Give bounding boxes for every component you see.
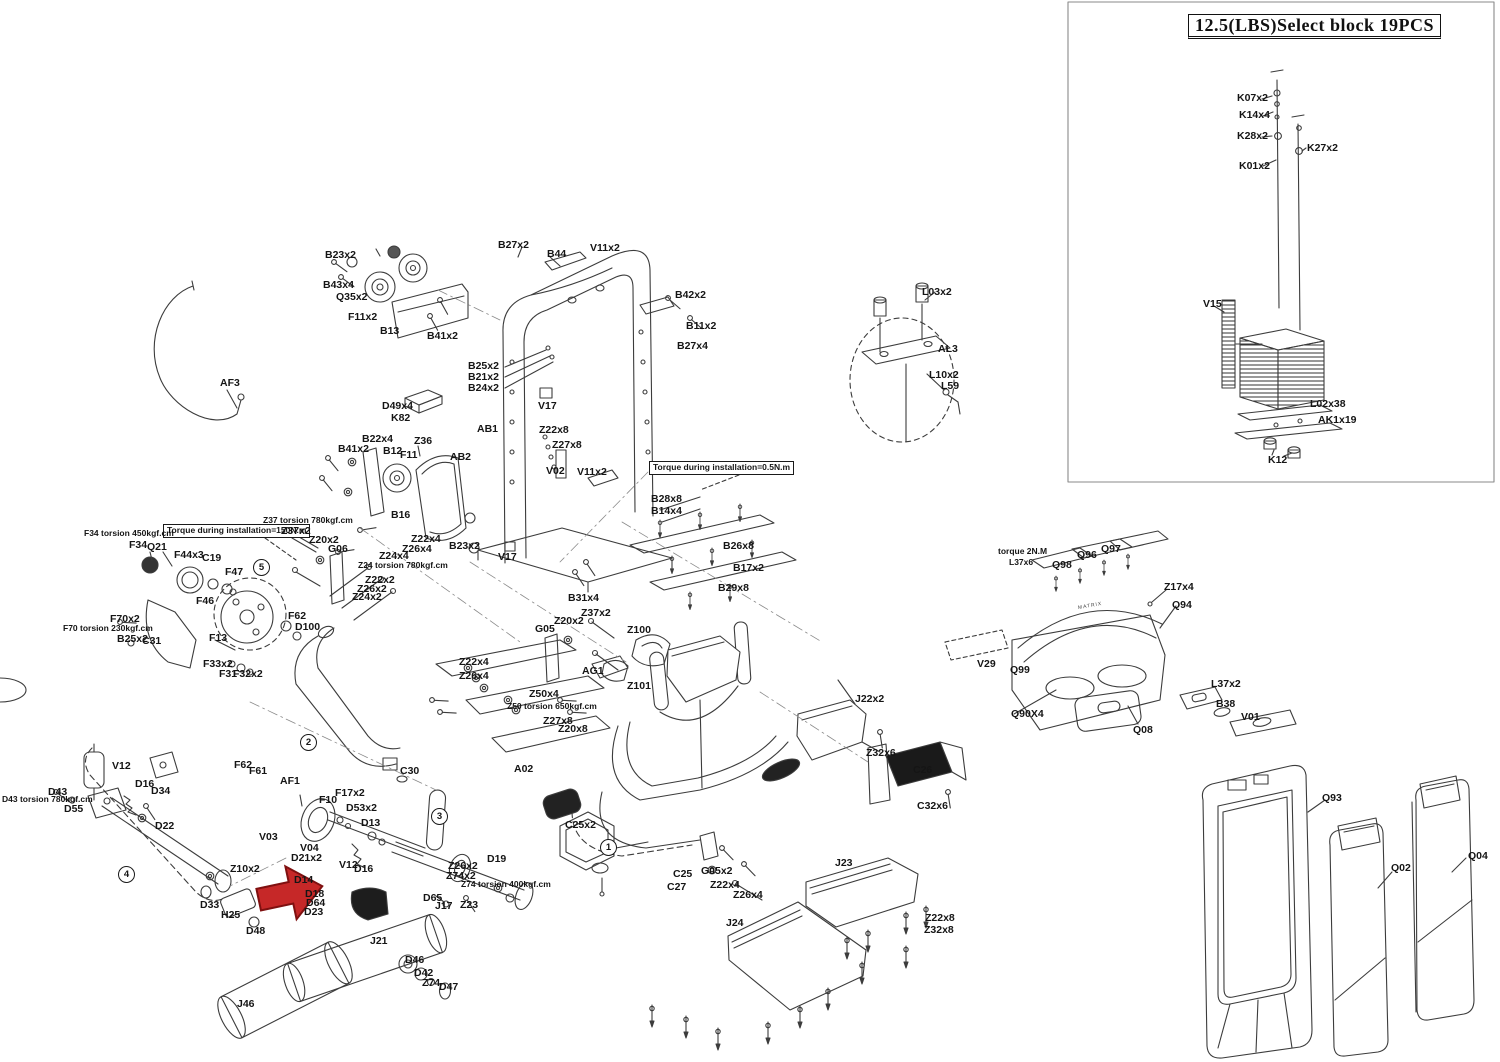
part-label: Q04: [1468, 851, 1488, 862]
part-label: L02x38: [1310, 399, 1346, 410]
part-label: F11: [400, 450, 418, 461]
part-label: D22: [155, 821, 174, 832]
part-label: Z23: [460, 900, 478, 911]
part-label: H25: [221, 910, 240, 921]
part-label: F44x3: [174, 550, 204, 561]
part-label: J22x2: [855, 694, 884, 705]
part-label: B26x8: [723, 541, 754, 552]
part-label: B17x2: [733, 563, 764, 574]
part-label: D19: [487, 854, 506, 865]
part-label: Z32x6: [866, 748, 896, 759]
part-label: Z37x2: [281, 526, 311, 537]
part-label: C27: [667, 882, 686, 893]
part-label: J23: [835, 858, 853, 869]
part-label: B41x2: [427, 331, 458, 342]
part-label: D100: [295, 622, 320, 633]
part-label: C26: [913, 765, 932, 776]
part-label: Q99: [1010, 665, 1030, 676]
part-label: 2: [300, 734, 317, 751]
part-label: Z10x2: [230, 864, 260, 875]
part-label: V03: [259, 832, 278, 843]
part-label: F46: [196, 596, 214, 607]
part-label: Z50 torsion 650kgf.cm: [507, 702, 597, 711]
part-label: B13: [380, 326, 399, 337]
part-label: D21x2: [291, 853, 322, 864]
part-label: V02: [546, 466, 565, 477]
part-label: J17: [435, 901, 453, 912]
part-label: Z20x8: [558, 724, 588, 735]
part-label: C30: [400, 766, 419, 777]
part-label: Q97: [1101, 544, 1121, 555]
part-label: V01: [1241, 712, 1260, 723]
part-label: B22x4: [362, 434, 393, 445]
part-label: Q02: [1391, 863, 1411, 874]
part-label: 3: [431, 808, 448, 825]
part-label: D49x4: [382, 401, 413, 412]
part-label: AK1x19: [1318, 415, 1357, 426]
part-label: Q21: [147, 542, 167, 553]
part-label: Z17x4: [1164, 582, 1194, 593]
part-label: D33: [200, 900, 219, 911]
part-label: B16: [391, 510, 410, 521]
part-label: F34 torsion 450kgf.cm: [84, 529, 174, 538]
inset-title: 12.5(LBS)Select block 19PCS: [1188, 14, 1441, 39]
part-label: torque 2N.M: [998, 547, 1047, 556]
part-label: B27x4: [677, 341, 708, 352]
part-label: D48: [246, 926, 265, 937]
part-label: J46: [237, 999, 255, 1010]
part-label: Q98: [1052, 560, 1072, 571]
part-label: K27x2: [1307, 143, 1338, 154]
part-label: C19: [202, 553, 221, 564]
part-label: AB1: [477, 424, 498, 435]
part-label: Q96: [1077, 550, 1097, 561]
part-label: B11x2: [686, 321, 716, 332]
part-label: 4: [118, 866, 135, 883]
part-label: Z26x4: [459, 671, 489, 682]
part-label: Q93: [1322, 793, 1342, 804]
part-label: K12: [1268, 455, 1287, 466]
part-label: D16: [354, 864, 373, 875]
part-label: F13: [209, 633, 227, 644]
part-label: Q35x2: [336, 292, 368, 303]
part-label: B31x4: [568, 593, 599, 604]
part-label: Z50x4: [529, 689, 559, 700]
part-label: L37x6: [1009, 558, 1033, 567]
part-label: Z20x2: [554, 616, 584, 627]
part-label: V15: [1203, 299, 1222, 310]
part-label: L37x2: [1211, 679, 1241, 690]
part-label: V11x2: [590, 243, 620, 254]
part-label: B24x2: [468, 383, 499, 394]
part-label: B23x2: [325, 250, 356, 261]
part-label: Z24x2: [352, 592, 382, 603]
part-label: D53x2: [346, 803, 377, 814]
part-label: Z22x8: [539, 425, 569, 436]
part-label: F17x2: [335, 788, 365, 799]
part-label: C32x6: [917, 801, 948, 812]
part-label: V17: [498, 552, 517, 563]
part-label: G06: [328, 544, 348, 555]
part-label: Z24 torsion 780kgf.cm: [358, 561, 448, 570]
part-label: F70 torsion 230kgf.cm: [63, 624, 153, 633]
part-label: B27x2: [498, 240, 529, 251]
part-label: Z36: [414, 436, 432, 447]
part-label: B23x2: [449, 541, 480, 552]
part-label: V17: [538, 401, 557, 412]
parts-diagram-page: 12.5(LBS)Select block 19PCS MATRIX K07x2…: [0, 0, 1500, 1062]
part-label: F47: [225, 567, 243, 578]
part-label: L59: [941, 381, 959, 392]
part-label: Z101: [627, 681, 651, 692]
part-label: F34: [129, 540, 147, 551]
part-label: K14x4: [1239, 110, 1270, 121]
part-label: F61: [249, 766, 267, 777]
part-label: D46: [405, 955, 424, 966]
part-label: Z27x8: [552, 440, 582, 451]
part-label: K28x2: [1237, 131, 1268, 142]
part-label: D47: [439, 982, 458, 993]
part-label: B14x4: [651, 506, 682, 517]
part-label: 5: [253, 559, 270, 576]
part-label: Q94: [1172, 600, 1192, 611]
part-label: G05x2: [701, 866, 733, 877]
part-label: B44: [547, 249, 566, 260]
part-label: C31: [142, 636, 161, 647]
part-label: C25x2: [565, 820, 596, 831]
part-label: Q08: [1133, 725, 1153, 736]
part-label: K82: [391, 413, 410, 424]
part-label: A02: [514, 764, 533, 775]
part-label: AF1: [280, 776, 300, 787]
part-label: Z22x8: [925, 913, 955, 924]
part-label: J21: [370, 936, 388, 947]
part-label: B29x8: [718, 583, 749, 594]
part-label: B42x2: [675, 290, 706, 301]
part-label: Z74 torsion 400kgf.cm: [461, 880, 551, 889]
part-label: B28x8: [651, 494, 682, 505]
part-label: V12: [112, 761, 131, 772]
part-label: AB2: [450, 452, 471, 463]
part-label: 1: [600, 839, 617, 856]
part-label: B41x2: [338, 444, 369, 455]
part-label: D34: [151, 786, 170, 797]
part-label: J24: [726, 918, 744, 929]
part-label: B38: [1216, 699, 1235, 710]
part-label: D23: [304, 907, 323, 918]
part-label: G05: [535, 624, 555, 635]
part-label: Z32x8: [924, 925, 954, 936]
part-label: Z37 torsion 780kgf.cm: [263, 516, 353, 525]
part-label: K01x2: [1239, 161, 1270, 172]
part-label: Z74: [422, 978, 440, 989]
part-label: Torque during installation=0.5N.m: [649, 461, 794, 475]
part-label: D14: [294, 875, 313, 886]
part-label: F11x2: [348, 312, 377, 323]
part-label: D13: [361, 818, 380, 829]
part-label: D55: [64, 804, 83, 815]
part-label: K07x2: [1237, 93, 1268, 104]
part-label: Z100: [627, 625, 651, 636]
part-label: C25: [673, 869, 692, 880]
part-label: AG1: [582, 666, 604, 677]
part-label: Q90X4: [1011, 709, 1044, 720]
part-label: V29: [977, 659, 996, 670]
part-label: AL3: [938, 344, 958, 355]
part-label: Z26x4: [733, 890, 763, 901]
part-label: B43x4: [323, 280, 354, 291]
part-label: L03x2: [922, 287, 952, 298]
part-label: Z37x2: [581, 608, 611, 619]
part-label: Z22x4: [459, 657, 489, 668]
part-label: V11x2: [577, 467, 607, 478]
part-label: F32x2: [233, 669, 263, 680]
part-label: AF3: [220, 378, 240, 389]
